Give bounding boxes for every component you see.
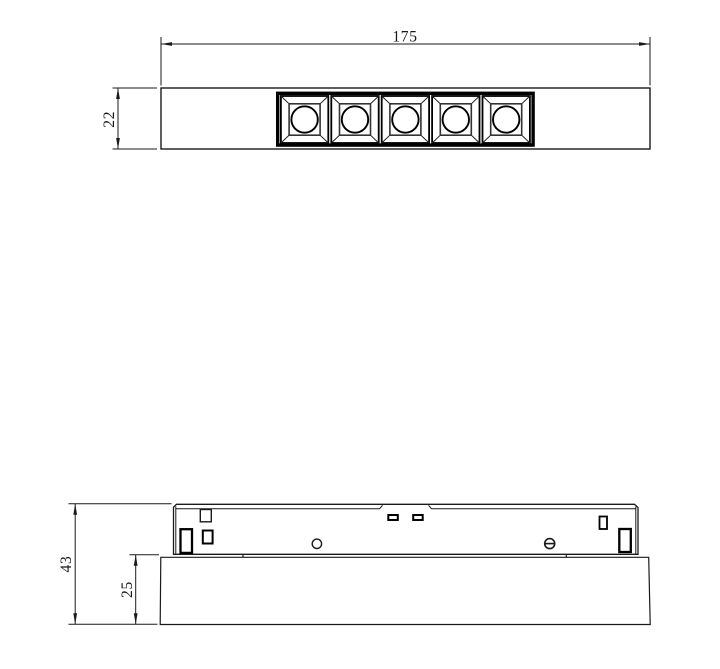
svg-text:22: 22 — [101, 111, 118, 128]
svg-text:25: 25 — [119, 581, 136, 598]
svg-text:43: 43 — [58, 556, 75, 573]
svg-text:175: 175 — [392, 29, 417, 46]
